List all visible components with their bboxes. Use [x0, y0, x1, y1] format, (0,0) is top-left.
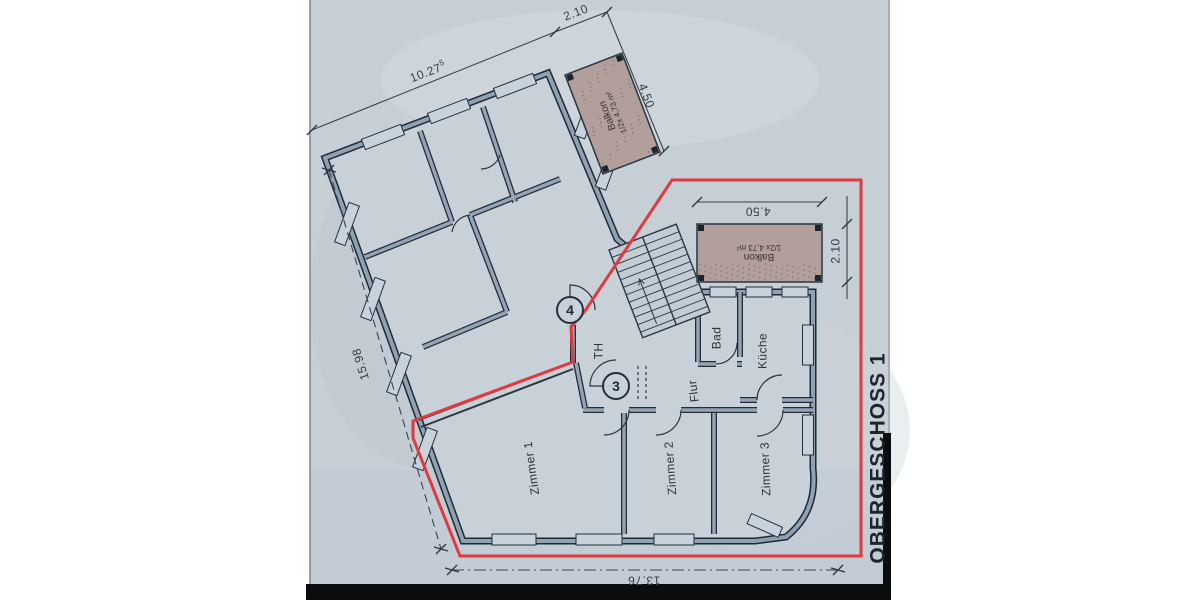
balcony-2-line2: 1/2x 4,73 m² [737, 242, 781, 251]
door-marker-3: 3 [602, 372, 630, 400]
paper-left-edge [309, 0, 311, 586]
dim-bottom-width: 13.76 [628, 573, 661, 586]
room-label-flur: Flur [686, 379, 702, 403]
balcony-2-label: Balkon 1/2x 4,73 m² [737, 242, 781, 262]
door-marker-4: 4 [556, 296, 584, 324]
room-label-th: TH [592, 343, 605, 360]
scan-bottom-border [306, 584, 890, 600]
dim-balcony2-depth: 2.10 [829, 238, 842, 263]
room-label-bad: Bad [710, 327, 723, 350]
scanned-floor-plan: Zimmer 1 Zimmer 2 Zimmer 3 Flur Bad Küch… [0, 0, 1200, 600]
balcony-2-line1: Balkon [744, 251, 775, 262]
dim-balcony2-width: 4.50 [745, 204, 770, 217]
room-label-kueche: Küche [756, 333, 769, 369]
floor-plan-drawing [0, 0, 1200, 600]
floor-title: OBERGESCHOSS 1 [866, 352, 889, 563]
room-label-zimmer-3: Zimmer 3 [758, 442, 773, 496]
